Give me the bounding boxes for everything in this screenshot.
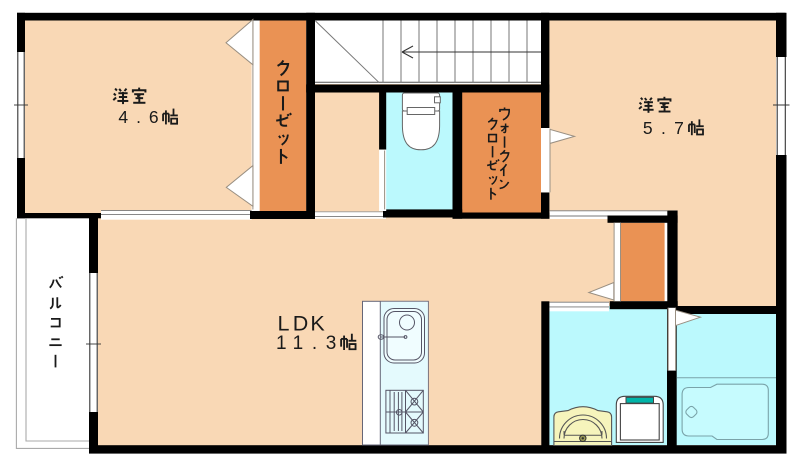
svg-text:.: . [136, 107, 141, 127]
svg-text:.: . [661, 118, 666, 138]
svg-text:1: 1 [293, 333, 304, 354]
svg-text:7: 7 [674, 118, 684, 138]
svg-text:.: . [312, 333, 317, 354]
svg-text:D: D [293, 312, 309, 336]
svg-text:5: 5 [643, 118, 653, 138]
svg-text:1: 1 [276, 333, 287, 354]
svg-text:L: L [278, 312, 290, 336]
svg-text:6: 6 [149, 107, 159, 127]
svg-text:4: 4 [118, 107, 128, 127]
svg-text:K: K [310, 312, 325, 336]
svg-text:3: 3 [326, 333, 337, 354]
